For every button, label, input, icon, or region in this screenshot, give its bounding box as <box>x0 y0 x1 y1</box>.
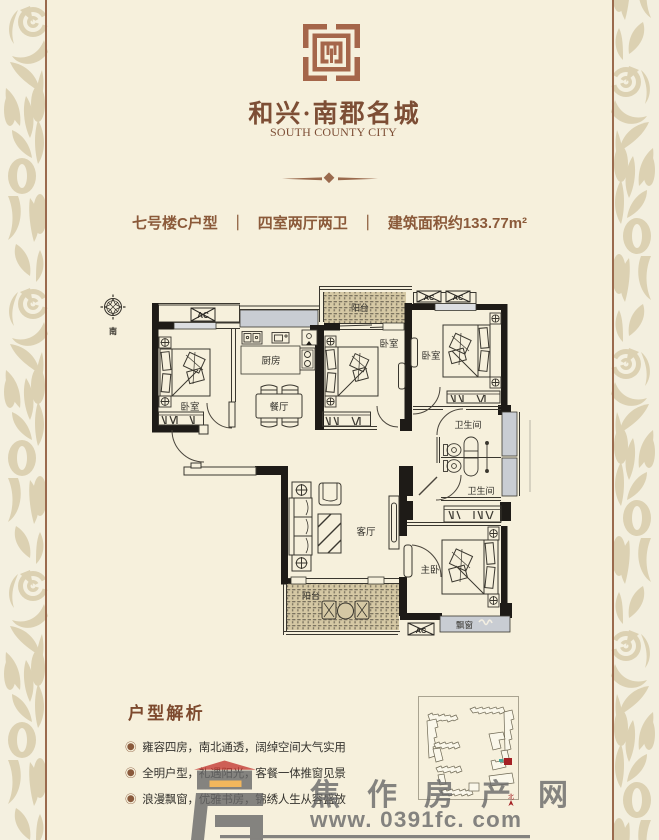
svg-text:客厅: 客厅 <box>356 526 376 538</box>
svg-text:卧室: 卧室 <box>379 338 398 350</box>
svg-text:AC: AC <box>197 311 209 320</box>
svg-text:AC: AC <box>453 293 464 302</box>
svg-text:飘窗: 飘窗 <box>456 620 473 630</box>
svg-text:卫生间: 卫生间 <box>467 485 494 496</box>
svg-text:主卧: 主卧 <box>420 564 440 576</box>
svg-text:AC: AC <box>424 293 435 302</box>
svg-text:阳台: 阳台 <box>351 302 369 313</box>
svg-text:卧室: 卧室 <box>421 350 440 362</box>
svg-text:卫生间: 卫生间 <box>454 419 481 430</box>
svg-text:厨房: 厨房 <box>261 355 280 367</box>
svg-text:南: 南 <box>109 326 117 336</box>
svg-text:卧室: 卧室 <box>180 401 199 413</box>
svg-text:阳台: 阳台 <box>302 590 320 601</box>
svg-text:AC: AC <box>416 626 427 635</box>
svg-text:北: 北 <box>508 793 514 801</box>
svg-text:餐厅: 餐厅 <box>269 401 289 413</box>
